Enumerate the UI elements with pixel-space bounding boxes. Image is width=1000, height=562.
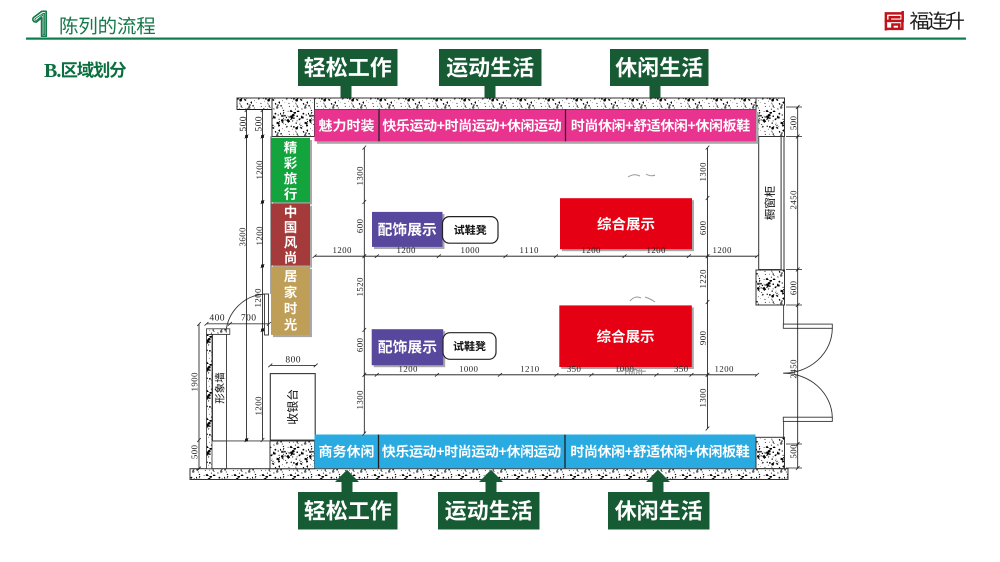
svg-text:B.: B. <box>44 60 61 82</box>
